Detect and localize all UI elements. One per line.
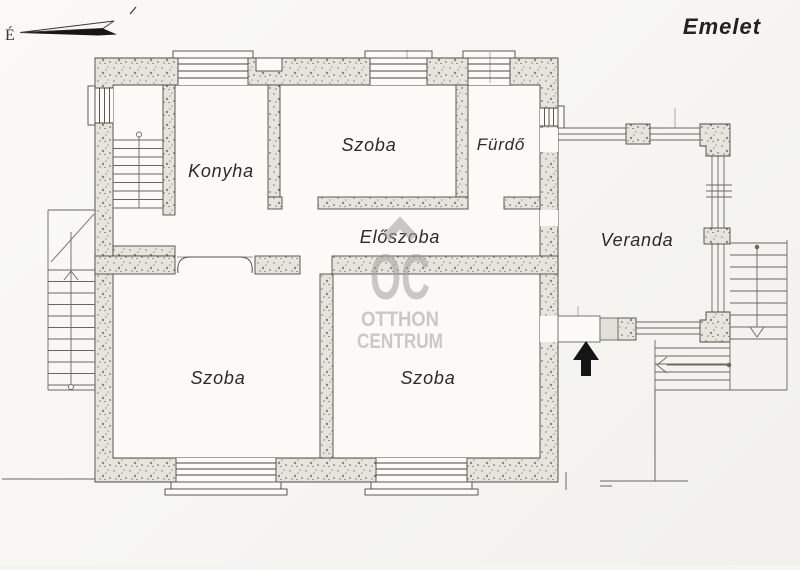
veranda-post [626, 124, 650, 144]
floorplan-canvas: É [0, 0, 800, 565]
interior-wall [113, 246, 175, 256]
plan-title: Emelet [683, 14, 762, 39]
interior-wall [95, 256, 175, 274]
watermark-logo: OC [370, 241, 430, 313]
interior-wall [268, 85, 280, 197]
watermark-line1: OTTHON [361, 308, 439, 331]
interior-wall [163, 85, 175, 215]
scanned-floorplan-page: É [0, 0, 800, 565]
interior-wall [456, 85, 468, 197]
room-label-furdo: Fürdő [477, 135, 525, 154]
veranda-post [700, 124, 730, 156]
veranda-post [700, 312, 730, 342]
room-label-veranda: Veranda [601, 230, 674, 250]
interior-wall [318, 197, 468, 209]
north-arrow-icon: É [5, 7, 136, 44]
entry-landing [558, 316, 600, 342]
north-label: É [5, 25, 15, 44]
room-label-szoba-br: Szoba [400, 368, 455, 388]
interior-wall [320, 274, 333, 458]
room-label-konyha: Konyha [188, 161, 254, 181]
veranda-post [704, 228, 730, 244]
entrance-arrow [573, 341, 599, 376]
interior-wall [268, 197, 282, 209]
room-label-szoba-bl: Szoba [190, 368, 245, 388]
interior-wall [332, 256, 558, 274]
veranda-post [618, 318, 636, 340]
interior-wall [504, 197, 540, 209]
room-label-szoba-top: Szoba [341, 135, 396, 155]
interior-wall [255, 256, 300, 274]
wall-notch [256, 58, 282, 71]
staircase-left-external [48, 210, 95, 390]
entry-step [600, 318, 618, 340]
watermark-line2: CENTRUM [357, 330, 443, 353]
